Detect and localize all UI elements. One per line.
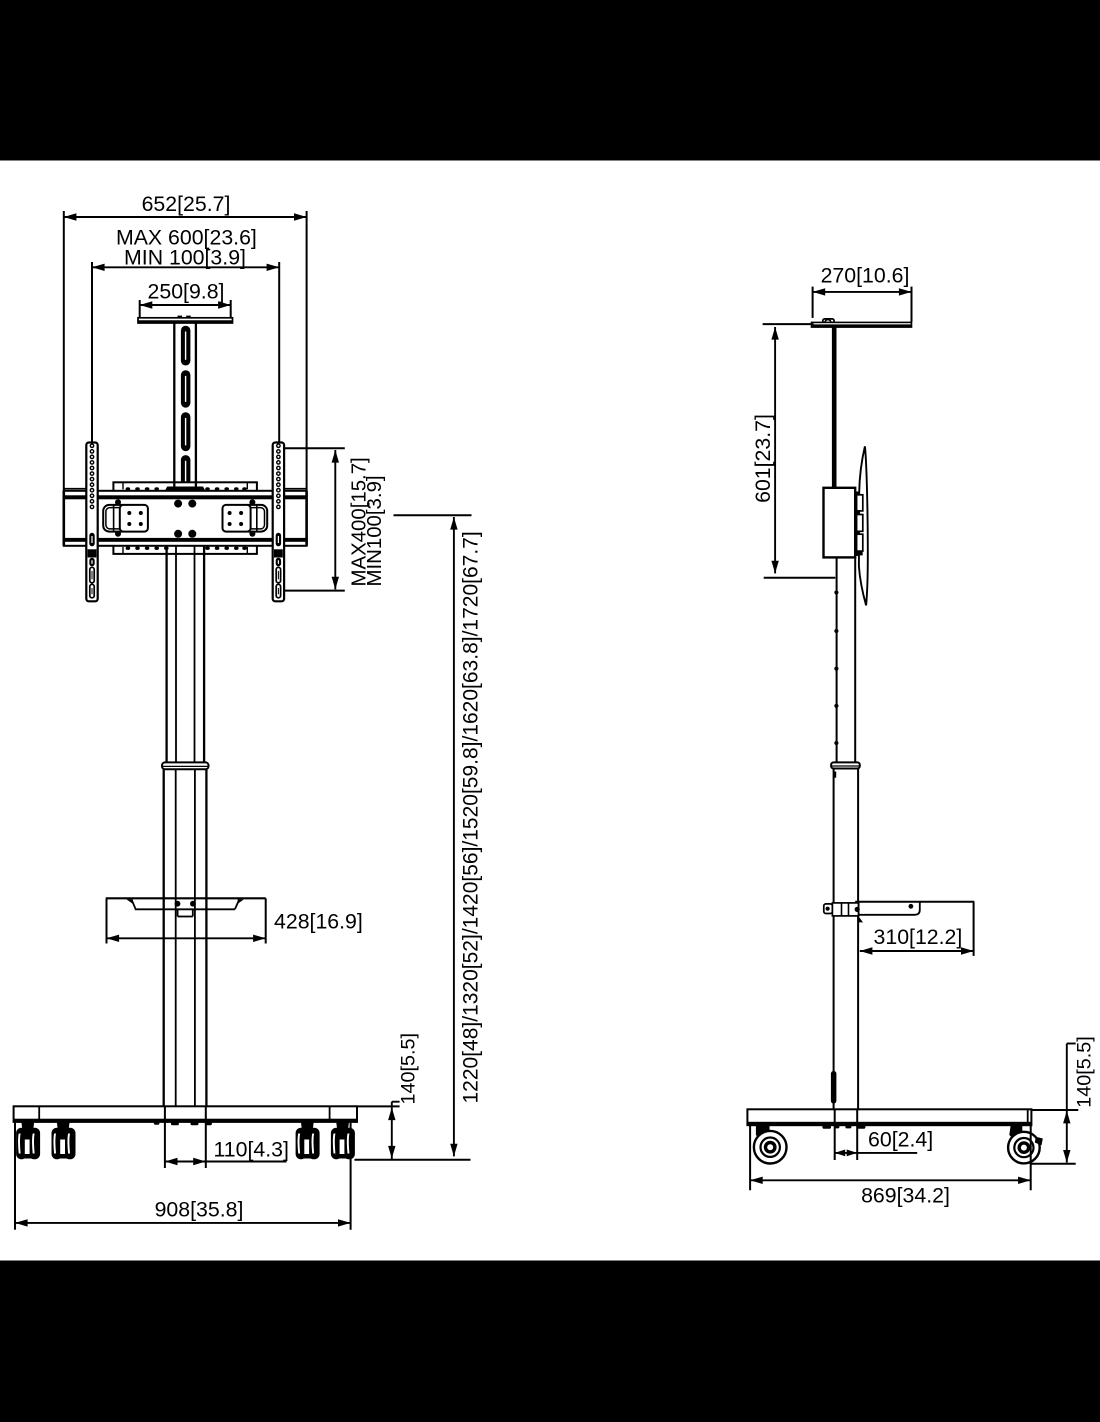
svg-text:908[35.8]: 908[35.8] (155, 1198, 244, 1222)
svg-text:270[10.6]: 270[10.6] (821, 264, 910, 288)
svg-text:140[5.5]: 140[5.5] (398, 1033, 420, 1105)
svg-text:1220[48]/1320[52]/1420[56]/152: 1220[48]/1320[52]/1420[56]/1520[59.8]/16… (460, 531, 483, 1103)
svg-text:60[2.4]: 60[2.4] (868, 1128, 933, 1152)
svg-text:110[4.3]: 110[4.3] (214, 1137, 289, 1161)
svg-text:140[5.5]: 140[5.5] (1074, 1036, 1096, 1108)
svg-text:310[12.2]: 310[12.2] (874, 925, 963, 949)
svg-text:601[23.7]: 601[23.7] (751, 414, 775, 503)
svg-text:MIN 100[3.9]: MIN 100[3.9] (124, 245, 246, 269)
svg-text:428[16.9]: 428[16.9] (274, 910, 363, 934)
svg-text:652[25.7]: 652[25.7] (142, 192, 231, 216)
svg-text:MIN100[3.9]: MIN100[3.9] (364, 475, 386, 586)
svg-text:250[9.8]: 250[9.8] (148, 279, 225, 303)
svg-text:869[34.2]: 869[34.2] (861, 1184, 950, 1208)
